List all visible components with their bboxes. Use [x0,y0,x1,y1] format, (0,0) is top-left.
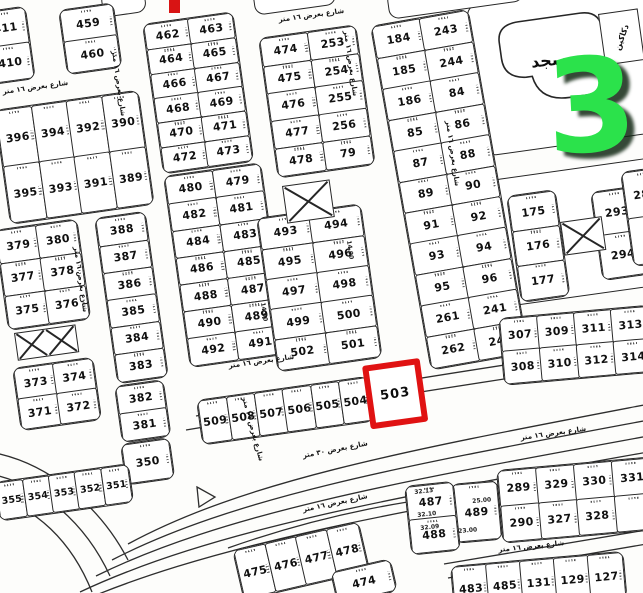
plot-number: 129 [560,572,585,587]
plot-number: 474 [273,42,299,58]
plot-number: 483 [232,227,258,243]
plot-309: 309 [536,313,577,350]
plot-number: 374 [61,368,87,384]
plot-number: 376 [54,296,80,312]
plot-372: 372 [56,388,100,425]
plot-number: 256 [331,117,357,133]
plot-488: 488 [409,515,460,554]
traffic-island-triangle [197,487,215,507]
plot-number: 309 [544,323,569,338]
plot-number: 509 [202,412,228,428]
plot-number: 380 [45,231,71,247]
plot-375: 375 [5,290,51,330]
plot-number: 468 [165,100,191,116]
plot-number: 327 [547,512,572,527]
plot-number: 328 [585,508,610,523]
plot-410: 410 [0,42,34,84]
plot-number: 478 [288,151,314,167]
plot-number: 499 [285,313,311,329]
plot-number: 314 [621,349,643,364]
plot-number: 460 [80,46,106,62]
plot-number: 127 [594,569,619,584]
plot-number: 384 [124,330,150,346]
plot-number: 507 [258,405,284,421]
plot-number: 497 [281,283,307,299]
plot-number: 371 [27,403,53,419]
plot-number: 379 [5,237,31,253]
highlighted-plot-number: 503 [379,384,411,403]
plot-number: 464 [158,51,184,67]
plot-314: 314 [613,338,643,375]
plot-307: 307 [499,316,540,353]
plot-389: 389 [109,147,154,209]
plot-number: 387 [113,249,139,265]
plot-number: 505 [315,397,341,413]
plot-number: 479 [225,173,251,189]
plot-number: 489 [464,504,489,519]
crossed-plot [560,216,606,256]
plot-number: 353 [53,485,75,499]
plot-number: 474 [351,573,377,591]
blk-390: 396394392390395393391389 [0,90,155,225]
plot-number: 289 [506,480,531,495]
plot-number: 394 [40,124,66,140]
overlay-number-3: 3 [543,46,639,168]
plot-number: 389 [118,169,144,185]
plot-number: 89 [417,186,435,202]
plot-number: 388 [109,222,135,238]
plot-number: 476 [280,97,306,113]
plot-number: 88 [459,147,477,163]
blk-372: 373374371372 [12,357,102,432]
plot-number: 244 [438,53,464,70]
plot-313: 313 [610,306,643,343]
plot-number: 261 [435,309,461,326]
plot-number: 312 [584,352,609,367]
plot-308: 308 [502,348,543,385]
plot-289: 289 [497,468,540,508]
plot-number: 487 [240,281,266,297]
plot-number: 184 [386,30,412,47]
plot-number: 378 [50,264,76,280]
plot-number: 491 [247,334,273,350]
map-canvas: مسجد دكاكين 503 3 4114104594603963943923… [0,0,643,593]
plot-number: 467 [205,69,231,85]
plot-number: 469 [209,94,235,110]
plot-number: 385 [120,303,146,319]
plot-478: 478 [275,142,328,178]
plot-number: 373 [23,374,49,390]
blk-493: 493494495496497498499500502501 [256,203,383,372]
plot-number: 383 [128,357,154,373]
plot-number: 411 [0,20,18,36]
plot-177: 177 [517,259,569,301]
blk-381: 382381 [114,379,172,443]
plot-number: 396 [5,129,31,145]
plot-number: 79 [339,145,357,160]
plot-number: 470 [169,124,195,140]
plot-383: 383 [114,348,167,383]
plot-number: 176 [525,238,551,254]
plot-number: 475 [242,562,268,580]
plot-number: 466 [162,76,188,92]
plot-number: 495 [277,253,303,269]
plot-329: 329 [535,464,578,504]
plot-number: 487 [418,494,443,509]
plot-number: 391 [83,174,109,190]
plot-number: 490 [197,314,223,330]
plot-number: 459 [75,15,101,31]
plot-472: 472 [161,141,210,173]
plot-number: 493 [273,223,299,239]
plot-330: 330 [573,461,616,501]
plot-number: 472 [172,149,198,165]
plot-number: 253 [320,35,346,51]
plot-number: 475 [277,69,303,85]
plot-number: 290 [509,515,534,530]
plot-number: 485 [236,254,262,270]
plot-number: 313 [618,317,643,332]
plot-number: 498 [332,276,358,292]
plot-number: 372 [66,398,92,414]
crossed-plot [282,179,335,223]
plot-502: 502 [274,332,330,371]
plot-371: 371 [18,393,62,430]
plot-number: 352 [79,482,101,496]
plot-number: 390 [110,114,136,130]
plot-number: 375 [15,302,41,318]
plot-number: 381 [132,416,158,432]
plot-number: 477 [284,124,310,140]
plot-number: 492 [200,341,226,357]
plot-number: 382 [128,390,154,406]
plot-number: 481 [229,200,255,216]
plot-number: 350 [135,453,161,469]
plot-number: 386 [117,276,143,292]
plot-number: 308 [510,358,535,373]
plot-number: 330 [582,473,607,488]
plot-number: 483 [458,581,483,593]
plot-number: 473 [216,143,242,159]
plot-number: 410 [0,55,23,71]
plot-number: 131 [526,575,551,590]
plot-number: 243 [433,22,459,39]
plot-number: 284 [632,186,643,202]
plot-number: 482 [182,207,208,223]
plot-331: 331 [611,458,643,498]
plot-310: 310 [539,344,580,381]
plot-number: 254 [324,63,350,79]
plot-number: 494 [323,216,349,232]
plot-number: 329 [544,477,569,492]
plot-number: 501 [340,336,366,352]
plot-number: 392 [75,119,101,135]
plot-328: 328 [576,496,619,536]
plot-311: 311 [573,309,614,346]
plot-number: 96 [481,271,499,287]
plot-number: 355 [1,493,23,507]
plot-number: 465 [202,45,228,61]
plot-381: 381 [119,407,170,442]
plot-number: 87 [411,155,429,171]
plot-327: 327 [538,499,581,539]
plot-number: 186 [397,92,423,109]
plot-79: 79 [322,135,375,171]
blk-474a: 47425347525447625547725647879 [258,24,376,178]
plot-number: 393 [48,179,74,195]
plot-number: 471 [212,118,238,134]
plot-number: 185 [391,61,417,78]
plot-number: 480 [178,180,204,196]
plot-number: 331 [620,470,643,485]
plot-number: 488 [193,287,219,303]
plot-number: 84 [448,85,466,101]
plot-number: 175 [521,204,547,220]
plot-number: 477 [303,548,329,566]
red-edge-marker [169,0,180,13]
plot-number: 476 [273,555,299,573]
plot-351: 351 [100,464,133,505]
plot-number: 307 [507,327,532,342]
plot-number: 177 [530,272,556,288]
plot-number: 255 [328,90,354,106]
plot-number: 93 [428,248,446,264]
plot-number: 90 [464,178,482,194]
plot-473: 473 [204,135,253,167]
plot-number: 262 [440,340,466,357]
plot-number: 95 [433,279,451,295]
plot-number: 94 [475,240,493,256]
plot-number: 395 [13,184,39,200]
plot-number: 486 [189,260,215,276]
plot-number: 354 [27,489,49,503]
plot-number: 484 [185,233,211,249]
plot-unlabeled [614,493,643,533]
plot-501: 501 [325,325,381,364]
plot-number: 91 [422,217,440,233]
cadastral-map-screenshot: مسجد دكاكين 503 3 4114104594603963943923… [0,0,643,593]
plot-number: 463 [198,21,224,37]
plot-number: 351 [106,478,128,492]
plot-number: 504 [343,393,369,409]
plot-290: 290 [500,503,543,543]
plot-number: 478 [334,541,360,559]
plot-number: 485 [492,578,517,593]
plot-number: 86 [453,116,471,132]
blk-307: 307309311313308310312314 [498,305,643,386]
plot-number: 377 [10,269,36,285]
highlighted-plot-503: 503 [362,358,428,429]
plot-number: 92 [470,209,488,225]
plot-number: 506 [287,401,313,417]
plot-number: 310 [547,355,572,370]
plot-number: 462 [155,27,181,43]
plot-number: 500 [336,306,362,322]
plot-number: 241 [482,301,508,318]
plot-127: 127 [587,552,626,593]
plot-number: 311 [581,320,606,335]
plot-number: 85 [406,124,424,140]
plot-312: 312 [576,341,617,378]
